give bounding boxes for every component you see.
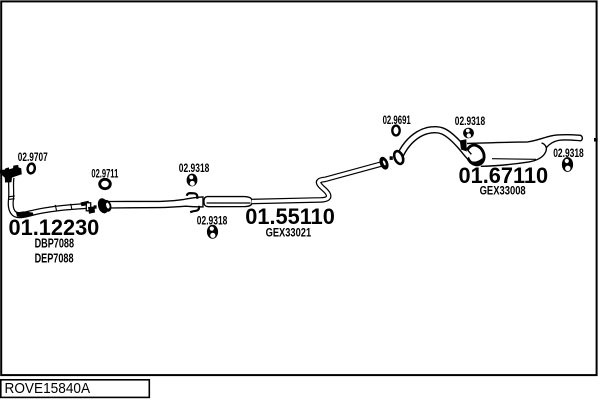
- svg-text:02.9318: 02.9318: [197, 215, 228, 228]
- svg-text:02.9318: 02.9318: [455, 116, 486, 129]
- svg-text:DEP7088: DEP7088: [35, 252, 74, 266]
- svg-text:ROVE15840A: ROVE15840A: [5, 380, 91, 396]
- svg-text:GEX33021: GEX33021: [266, 228, 312, 240]
- svg-text:02.9691: 02.9691: [383, 115, 411, 128]
- svg-text:GEX33008: GEX33008: [480, 185, 526, 198]
- svg-text:02.9707: 02.9707: [18, 152, 48, 165]
- svg-text:02.9318: 02.9318: [179, 163, 210, 176]
- svg-text:DBP7088: DBP7088: [35, 237, 74, 251]
- svg-text:01.55110: 01.55110: [245, 204, 335, 229]
- svg-text:02.9711: 02.9711: [91, 168, 118, 181]
- svg-text:01.12230: 01.12230: [9, 215, 100, 240]
- svg-text:02.9318: 02.9318: [553, 148, 584, 161]
